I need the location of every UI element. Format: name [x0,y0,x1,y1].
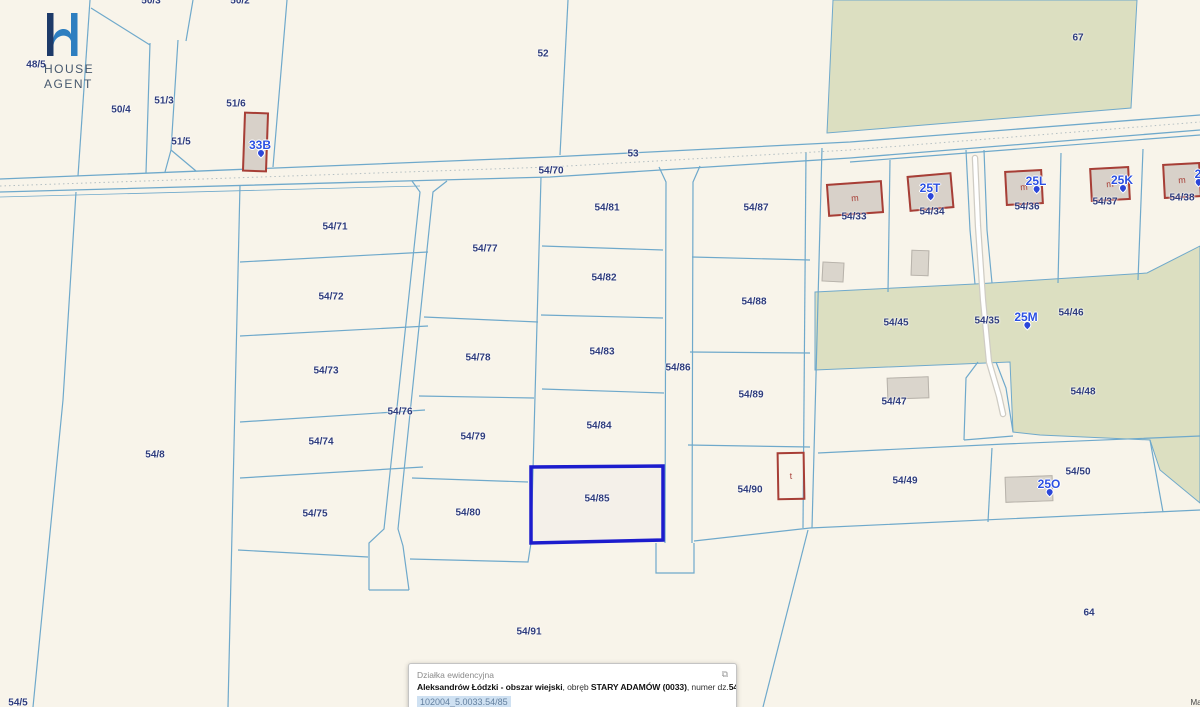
forest-parcel-67 [827,0,1137,133]
popup-expand-icon[interactable]: ⧉ [722,670,728,679]
brand-name-line1: HOUSE [44,63,114,76]
outbuilding [821,261,844,282]
building-letter: t [790,471,793,480]
building: m [826,180,884,217]
outbuilding [887,376,930,399]
popup-obreb: STARY ADAMÓW (0033) [591,682,687,692]
popup-region: Aleksandrów Łódzki - obszar wiejski [417,682,563,692]
map-attribution: Map [1190,698,1200,707]
popup-parcel-number: 54/85 [729,682,737,692]
address-label[interactable]: 25O [1038,477,1061,491]
address-label[interactable]: 25L [1026,174,1047,188]
brand-name-line2: AGENT [44,78,114,91]
vegetation-45-46-48 [815,246,1200,503]
building-letter: m [1178,176,1186,185]
parcel-info-popup: Działka ewidencyjna ⧉ Aleksandrów Łódzki… [408,663,737,707]
house-agent-logo: HOUSE AGENT [44,12,114,90]
address-label[interactable]: 33B [249,138,271,152]
popup-title: Działka ewidencyjna [417,670,494,680]
house-agent-logo-icon [44,12,78,56]
popup-obreb-prefix: , obręb [563,682,591,692]
selected-parcel-outline[interactable] [531,466,663,543]
address-label[interactable]: 25T [920,181,941,195]
popup-parcel-description: Aleksandrów Łódzki - obszar wiejski, obr… [417,682,728,692]
popup-parcel-id[interactable]: 102004_5.0033.54/85 [417,696,511,707]
map-canvas[interactable]: mmmmt 48/550/350/250/451/351/551/6525354… [0,0,1200,707]
outbuilding [911,250,930,277]
building: t [777,452,806,500]
address-label[interactable]: 2 [1195,167,1200,181]
cadastral-lines-layer [0,0,1200,707]
building-letter: m [851,194,859,204]
address-label[interactable]: 25K [1111,173,1133,187]
popup-number-prefix: , numer dz. [687,682,729,692]
address-label[interactable]: 25M [1014,310,1037,324]
